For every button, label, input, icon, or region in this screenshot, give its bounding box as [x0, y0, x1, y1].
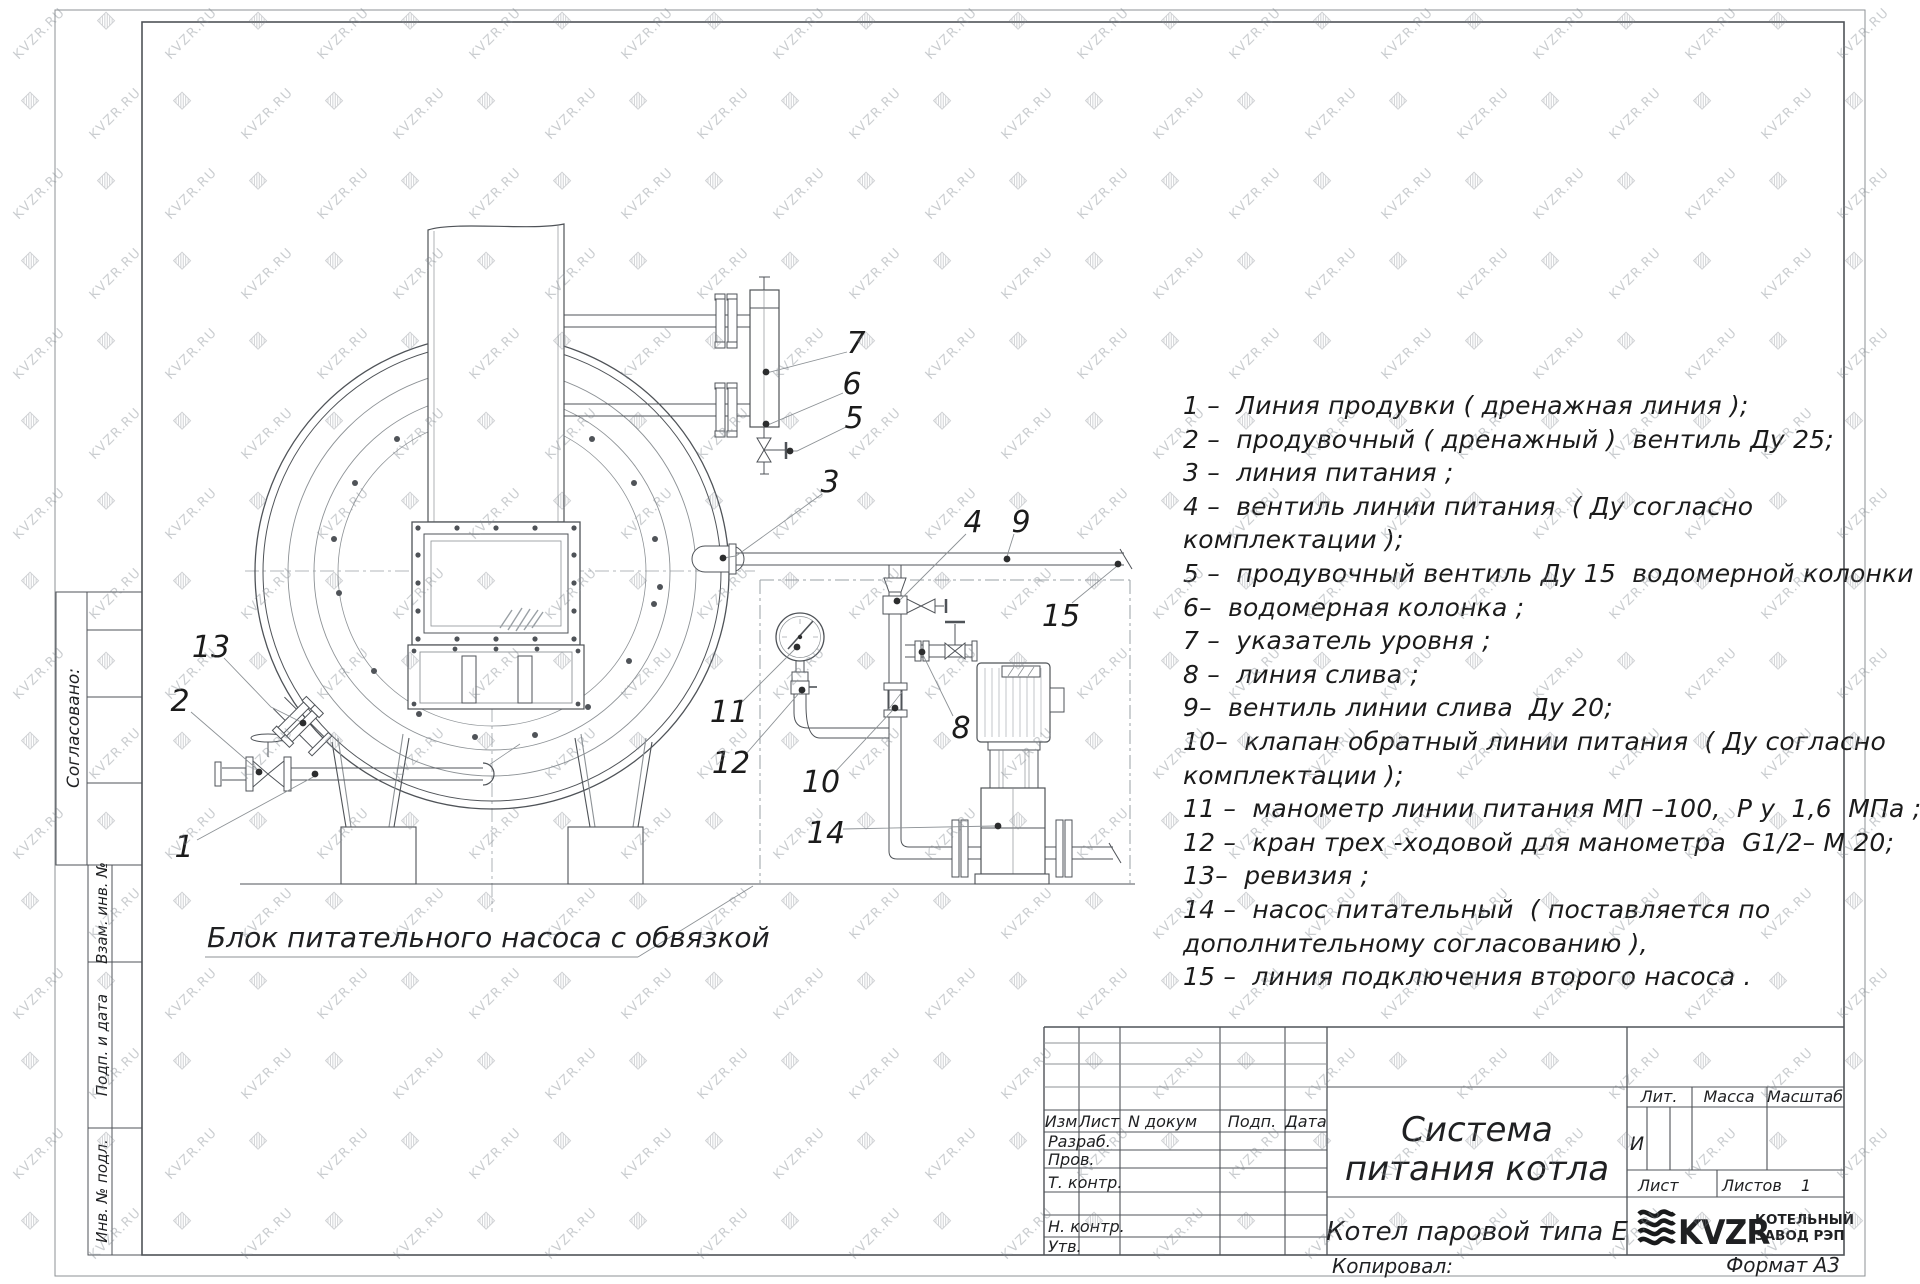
callout-number-10: 10	[802, 765, 840, 800]
callout-dot-11	[794, 644, 801, 651]
callout-number-13: 13	[192, 630, 230, 665]
callout-dot-12	[799, 687, 806, 694]
row-razrab: Разраб.	[1048, 1132, 1111, 1151]
company-line2: ЗАВОД РЭП	[1755, 1228, 1845, 1244]
legend-line-17: дополнительному согласованию ),	[1183, 927, 1920, 961]
callout-dot-4	[894, 598, 901, 605]
callout-dot-1	[312, 771, 319, 778]
callout-dot-6	[763, 421, 770, 428]
list-label: Лист	[1637, 1176, 1679, 1195]
callout-dot-10	[892, 705, 899, 712]
drawing-sheet: Согласовано: Взам. инв. № Подп. и дата И…	[0, 0, 1920, 1280]
legend-line-4: 4 – вентиль линии питания ( Ду согласно	[1183, 490, 1920, 524]
doc-title-line2: питания котла	[1345, 1149, 1609, 1189]
legend-line-5: комплектации );	[1183, 523, 1920, 557]
callout-number-1: 1	[174, 830, 193, 865]
legend: 1 – Линия продувки ( дренажная линия );2…	[1183, 389, 1920, 994]
legend-line-14: 12 – кран трех -ходовой для манометра G1…	[1183, 826, 1920, 860]
callout-number-7: 7	[846, 326, 865, 361]
col-podp: Подп.	[1228, 1112, 1276, 1131]
col-list: Лист	[1078, 1112, 1120, 1131]
legend-line-1: 1 – Линия продувки ( дренажная линия );	[1183, 389, 1920, 423]
callout-number-6: 6	[842, 367, 861, 402]
col-n-dokum: N докум	[1128, 1112, 1197, 1131]
callout-leader-13	[224, 658, 303, 723]
callout-dot-3	[720, 555, 727, 562]
legend-line-13: 11 – манометр линии питания МП –100, Р у…	[1183, 792, 1920, 826]
row-utv: Утв.	[1048, 1237, 1082, 1256]
legend-line-18: 15 – линия подключения второго насоса .	[1183, 960, 1920, 994]
callout-dot-5	[787, 448, 794, 455]
callout-leader-5	[790, 427, 846, 451]
col-data: Дата	[1284, 1112, 1326, 1131]
callout-dot-9	[1004, 556, 1011, 563]
callout-leader-12	[746, 690, 802, 754]
callout-dot-13	[300, 720, 307, 727]
callout-number-4: 4	[963, 505, 982, 540]
left-margin-stamps: Согласовано: Взам. инв. № Подп. и дата И…	[56, 592, 142, 1255]
feed-line-and-pump	[692, 544, 1132, 884]
row-t-kontr: Т. контр.	[1048, 1173, 1122, 1192]
callout-leader-10	[834, 708, 895, 773]
callout-number-9: 9	[1011, 505, 1030, 540]
boiler-door	[408, 522, 584, 709]
doc-title-line1: Система	[1401, 1110, 1553, 1150]
stamp-inv-podl: Инв. № подл.	[93, 1139, 111, 1242]
callout-number-2: 2	[170, 684, 189, 719]
legend-line-16: 14 – насос питательный ( поставляется по	[1183, 893, 1920, 927]
legend-line-10: 9– вентиль линии слива Ду 20;	[1183, 691, 1920, 725]
row-n-kontr: Н. контр.	[1048, 1217, 1125, 1236]
legend-line-2: 2 – продувочный ( дренажный ) вентиль Ду…	[1183, 423, 1920, 457]
callout-leader-4	[897, 534, 966, 601]
title-block: Изм Лист N докум Подп. Дата Разраб. Пров…	[1044, 1027, 1854, 1278]
legend-line-7: 6– водомерная колонка ;	[1183, 591, 1920, 625]
legend-line-9: 8 – линия слива ;	[1183, 658, 1920, 692]
callout-number-14: 14	[807, 816, 845, 851]
callout-number-5: 5	[844, 401, 863, 436]
row-prov: Пров.	[1048, 1150, 1095, 1169]
callout-dot-2	[256, 769, 263, 776]
callout-dot-14	[995, 823, 1002, 830]
legend-line-3: 3 – линия питания ;	[1183, 456, 1920, 490]
lit-value: И	[1630, 1133, 1644, 1155]
callout-leader-11	[742, 647, 797, 702]
product-name: Котел паровой типа Е	[1326, 1217, 1628, 1247]
chimney	[428, 224, 564, 522]
listov-value: 1	[1801, 1176, 1811, 1195]
company-line1: КОТЕЛЬНЫЙ	[1755, 1211, 1854, 1228]
callouts: 121335674915111210148	[170, 326, 1121, 865]
callout-number-11: 11	[710, 695, 748, 730]
listov-label: Листов	[1721, 1176, 1782, 1195]
callout-number-3: 3	[820, 465, 839, 500]
callout-number-15: 15	[1042, 599, 1080, 634]
callout-dot-8	[919, 649, 926, 656]
stamp-soglasovano: Согласовано:	[64, 668, 84, 788]
col-izm: Изм	[1045, 1112, 1078, 1131]
masshtab-label: Масштаб	[1767, 1087, 1843, 1106]
kvzr-logo-icon	[1639, 1212, 1674, 1243]
lit-label: Лит.	[1640, 1087, 1678, 1106]
legend-line-12: комплектации );	[1183, 759, 1920, 793]
stamp-podp-data: Подп. и дата	[93, 994, 111, 1096]
callout-number-12: 12	[712, 746, 750, 781]
legend-line-6: 5 – продувочный вентиль Ду 15 водомерной…	[1183, 557, 1920, 591]
legend-line-8: 7 – указатель уровня ;	[1183, 624, 1920, 658]
callout-dot-7	[763, 369, 770, 376]
legend-line-15: 13– ревизия ;	[1183, 859, 1920, 893]
water-level-column	[564, 277, 786, 474]
callout-leader-8	[922, 652, 953, 716]
callout-number-8: 8	[951, 711, 970, 746]
format-label: Формат А3	[1726, 1253, 1840, 1277]
stamp-vzam-inv: Взам. инв. №	[93, 862, 111, 964]
callout-leader-15	[1072, 564, 1118, 603]
kopiroval-label: Копировал:	[1332, 1254, 1453, 1278]
callout-dot-15	[1115, 561, 1122, 568]
callout-leader-14	[843, 826, 998, 829]
block-label: Блок питательного насоса с обвязкой	[207, 921, 770, 954]
legend-line-11: 10– клапан обратный линии питания ( Ду с…	[1183, 725, 1920, 759]
massa-label: Масса	[1703, 1087, 1754, 1106]
